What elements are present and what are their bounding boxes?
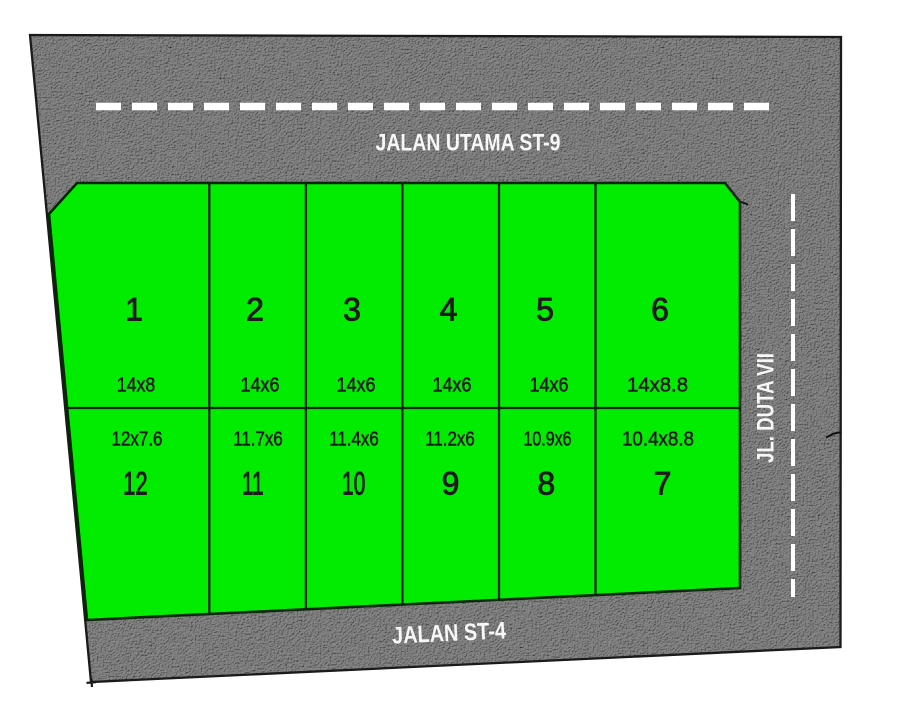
svg-text:11.4x6: 11.4x6 [329,428,379,450]
svg-text:2: 2 [246,292,264,328]
svg-text:14x6: 14x6 [241,374,280,396]
svg-text:JALAN ST-4: JALAN ST-4 [391,617,507,649]
svg-text:JALAN UTAMA ST-9: JALAN UTAMA ST-9 [376,129,561,156]
svg-text:11.2x6: 11.2x6 [425,428,475,450]
svg-text:5: 5 [536,292,554,328]
svg-text:11: 11 [242,466,264,502]
svg-text:12x7.6: 12x7.6 [112,428,163,450]
svg-text:7: 7 [654,466,672,502]
svg-text:10.4x8.8: 10.4x8.8 [622,428,694,450]
svg-text:10.9x6: 10.9x6 [524,428,572,450]
svg-text:14x8.8: 14x8.8 [627,374,688,396]
svg-text:6: 6 [651,292,669,328]
svg-text:8: 8 [537,466,555,502]
svg-text:14x6: 14x6 [433,374,472,396]
svg-text:10: 10 [342,466,366,502]
svg-text:9: 9 [442,466,460,502]
svg-text:3: 3 [343,292,361,328]
svg-text:JL. DUTA VII: JL. DUTA VII [753,353,780,463]
svg-text:12: 12 [123,466,148,502]
svg-text:4: 4 [440,292,458,328]
svg-text:1: 1 [125,292,143,328]
svg-text:14x6: 14x6 [337,374,376,396]
svg-text:14x8: 14x8 [117,374,156,396]
svg-text:11.7x6: 11.7x6 [233,428,283,450]
svg-text:14x6: 14x6 [530,374,569,396]
